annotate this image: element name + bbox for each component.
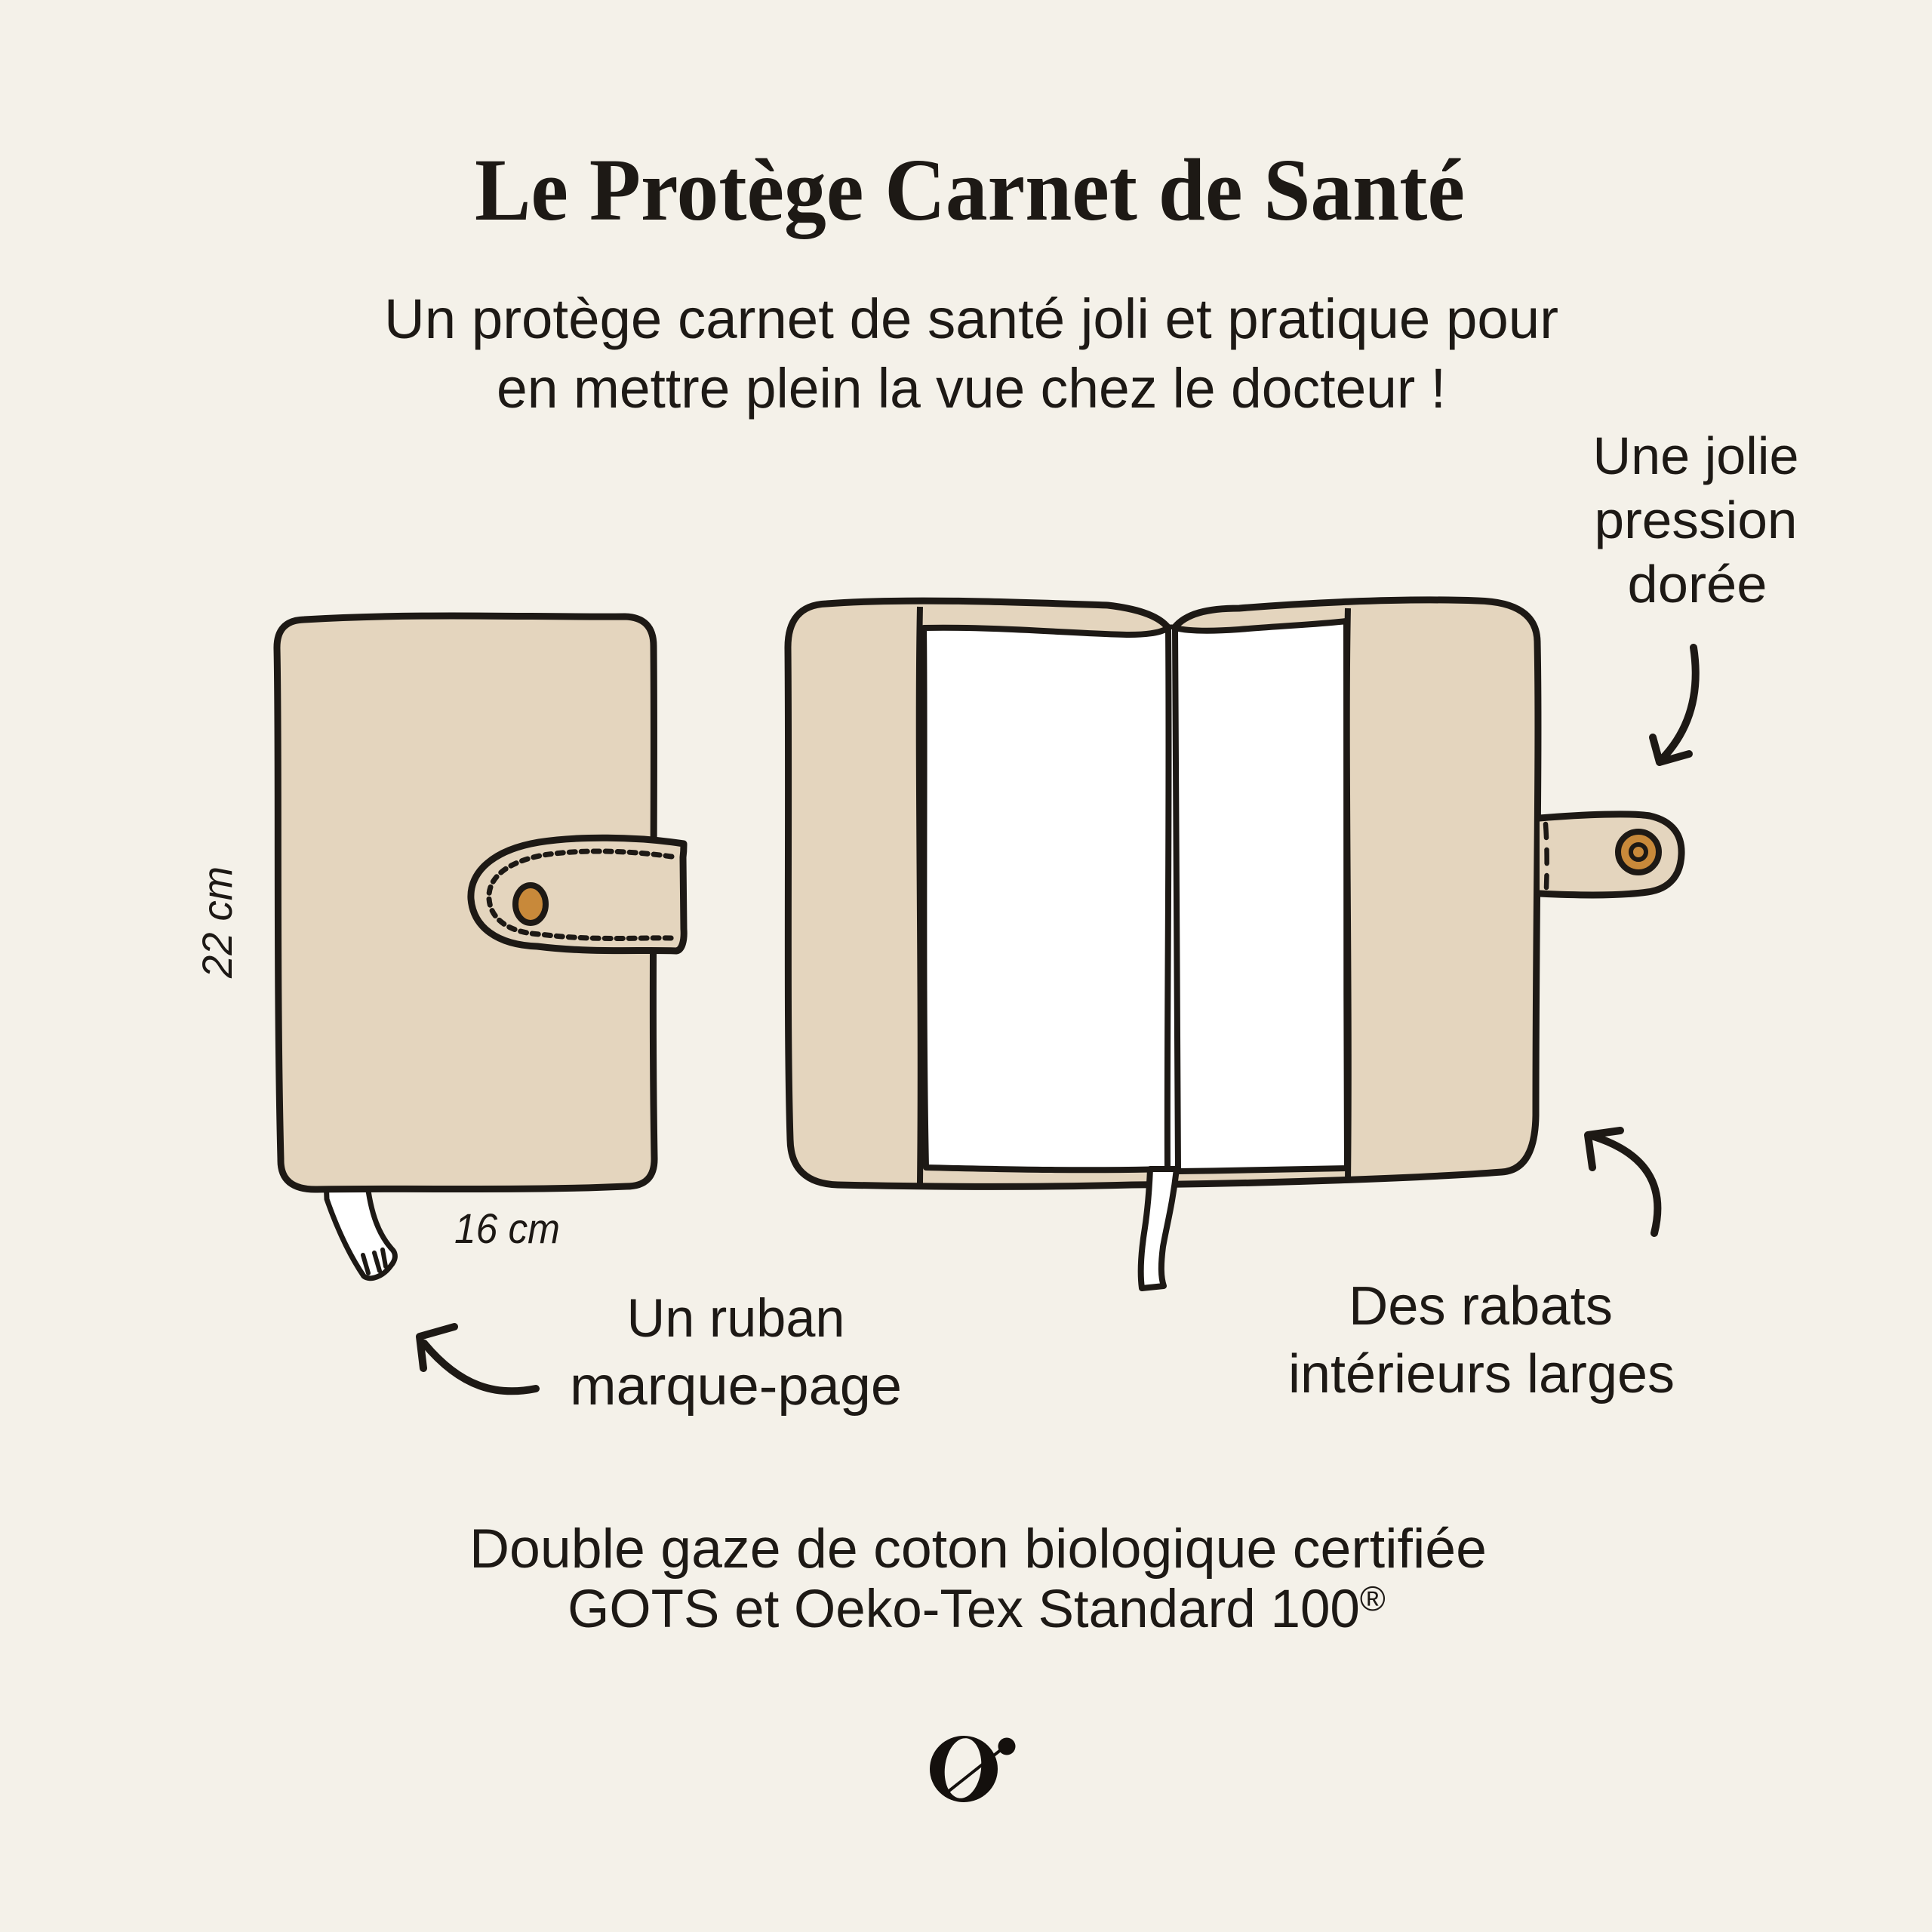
svg-text:Un ruban: Un ruban [627, 1289, 845, 1349]
svg-text:marque-page: marque-page [570, 1356, 902, 1417]
svg-text:Double gaze de coton biologiqu: Double gaze de coton biologique certifié… [469, 1518, 1487, 1580]
svg-text:Un protège carnet de santé jol: Un protège carnet de santé joli et prati… [384, 288, 1558, 350]
svg-text:16 cm: 16 cm [454, 1204, 560, 1252]
svg-text:intérieurs larges: intérieurs larges [1288, 1344, 1675, 1404]
svg-text:Des rabats: Des rabats [1349, 1276, 1613, 1337]
svg-text:en mettre plein la vue chez le: en mettre plein la vue chez le docteur ! [497, 357, 1446, 420]
svg-text:dorée: dorée [1628, 555, 1767, 614]
svg-text:22 cm: 22 cm [193, 866, 241, 979]
svg-text:GOTS et Oeko-Tex Standard 100®: GOTS et Oeko-Tex Standard 100® [568, 1579, 1386, 1639]
svg-text:Le Protège Carnet de Santé: Le Protège Carnet de Santé [475, 140, 1465, 239]
svg-text:pression: pression [1595, 491, 1798, 549]
svg-text:Une jolie: Une jolie [1593, 426, 1799, 485]
